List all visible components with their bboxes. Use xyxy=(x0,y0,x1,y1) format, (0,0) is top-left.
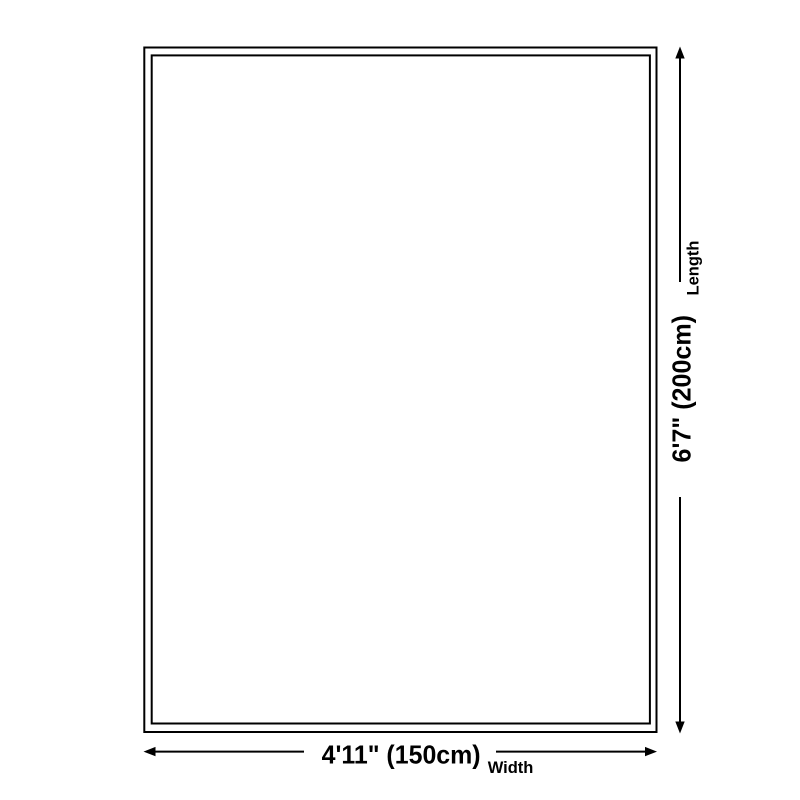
svg-text:Length: Length xyxy=(685,241,703,296)
svg-text:4'11" (150cm): 4'11" (150cm) xyxy=(322,740,481,770)
svg-text:6'7" (200cm): 6'7" (200cm) xyxy=(666,315,696,463)
svg-text:Width: Width xyxy=(488,759,534,777)
